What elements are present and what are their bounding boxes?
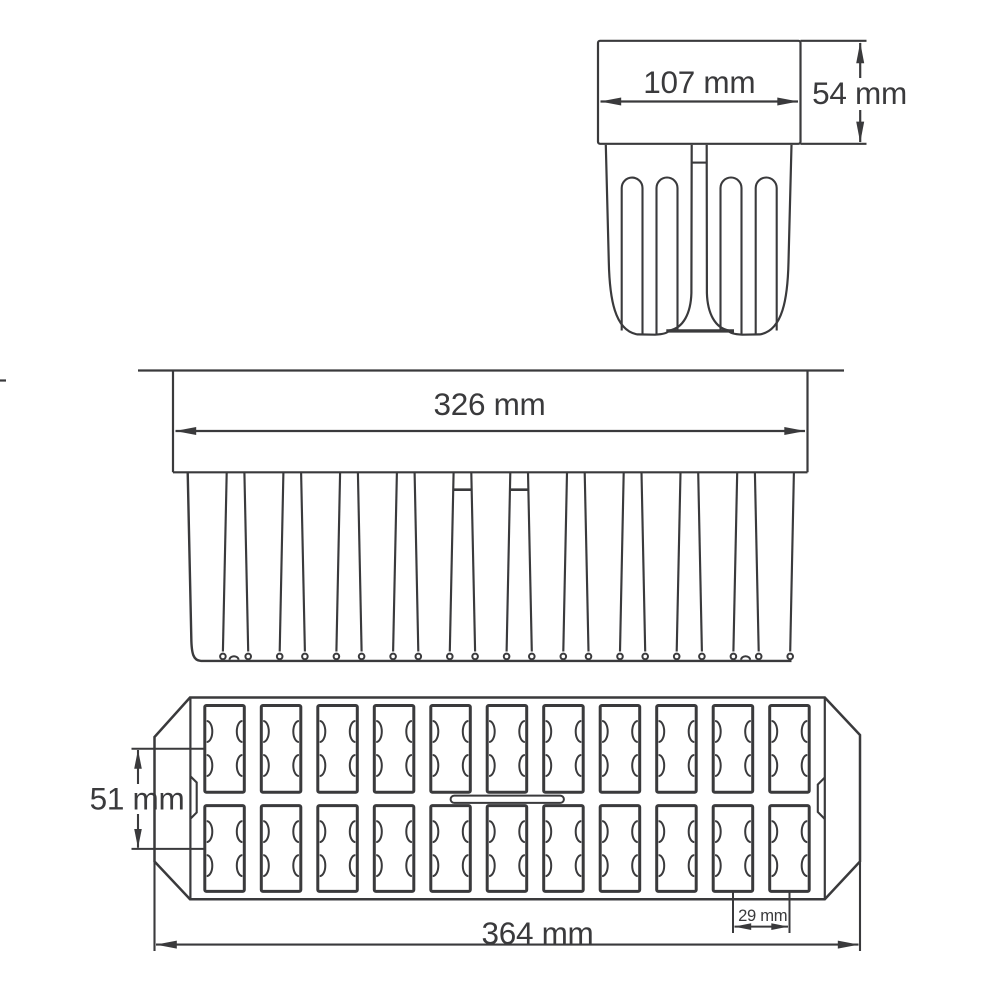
svg-text:51 mm: 51 mm (90, 780, 185, 816)
svg-text:29 mm: 29 mm (738, 906, 787, 925)
svg-text:364 mm: 364 mm (482, 915, 594, 951)
svg-text:54 mm: 54 mm (812, 75, 907, 111)
svg-text:326 mm: 326 mm (434, 386, 546, 422)
svg-text:107 mm: 107 mm (643, 64, 755, 100)
